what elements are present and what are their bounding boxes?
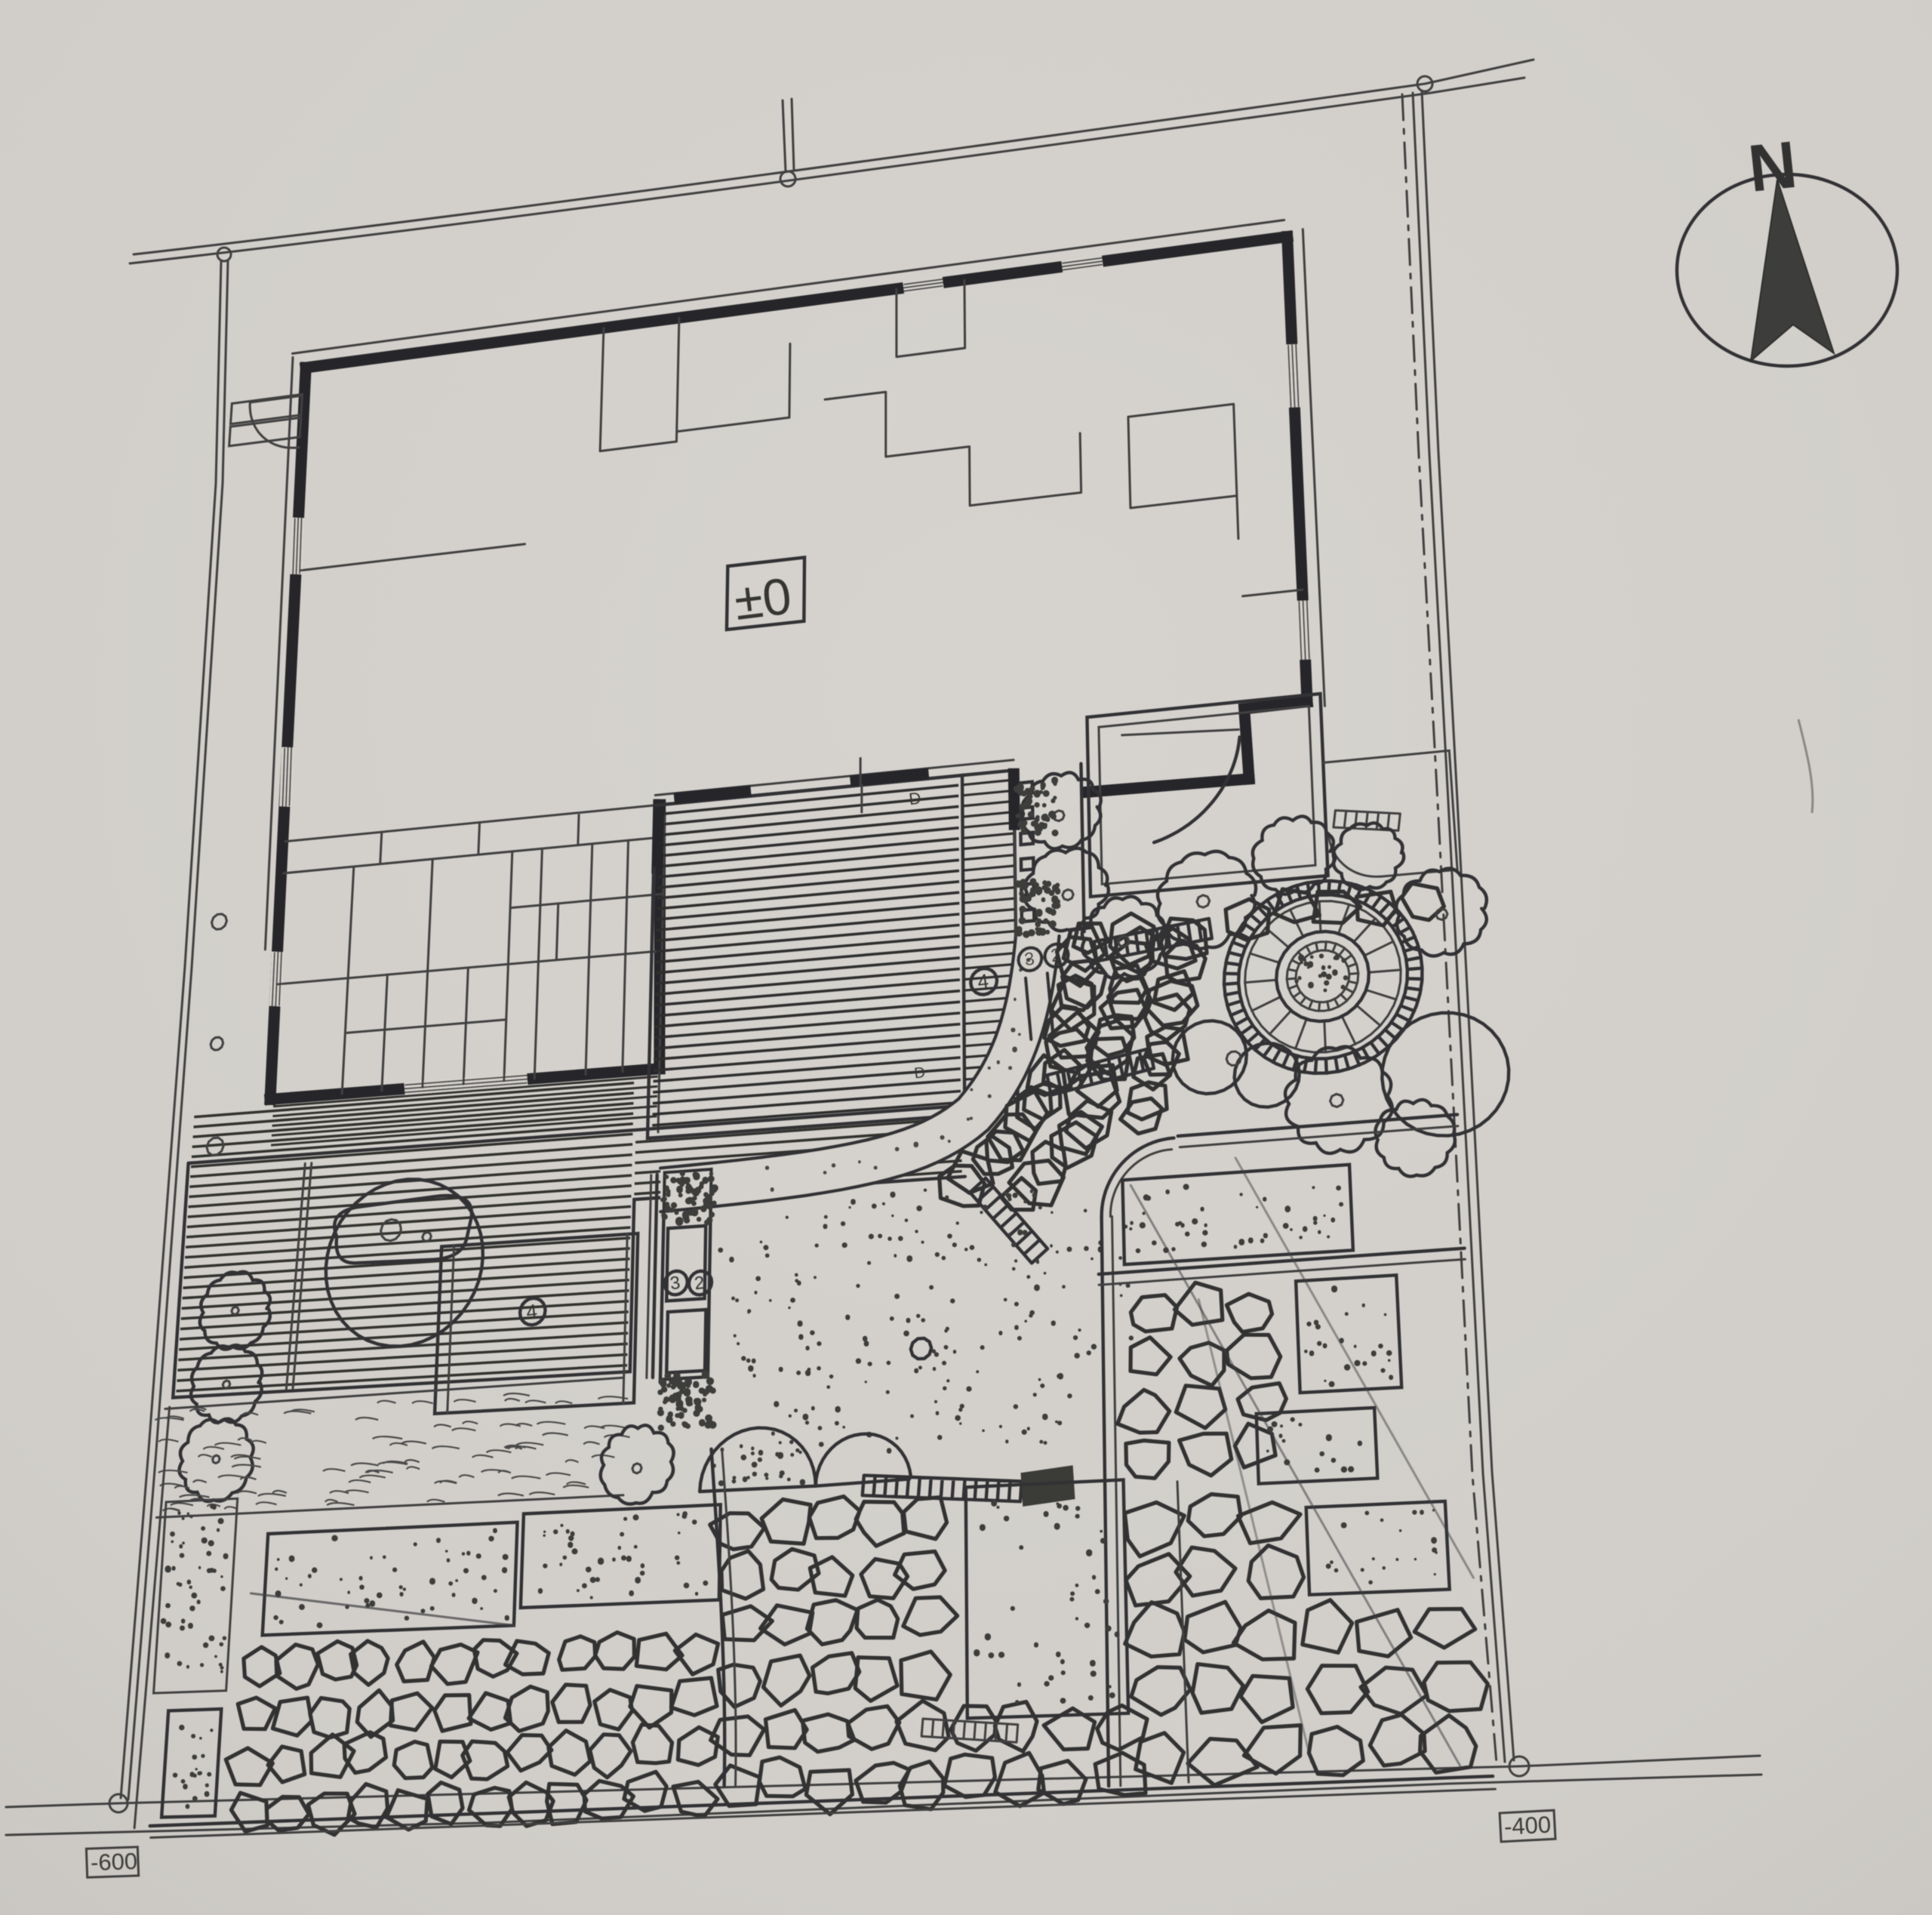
svg-text:-600: -600 [90, 1848, 137, 1876]
svg-text:-400: -400 [1503, 1812, 1552, 1840]
svg-text:D: D [908, 788, 922, 808]
svg-text:±0: ±0 [731, 567, 795, 631]
svg-text:N: N [1745, 127, 1801, 206]
svg-text:D: D [913, 1064, 926, 1082]
